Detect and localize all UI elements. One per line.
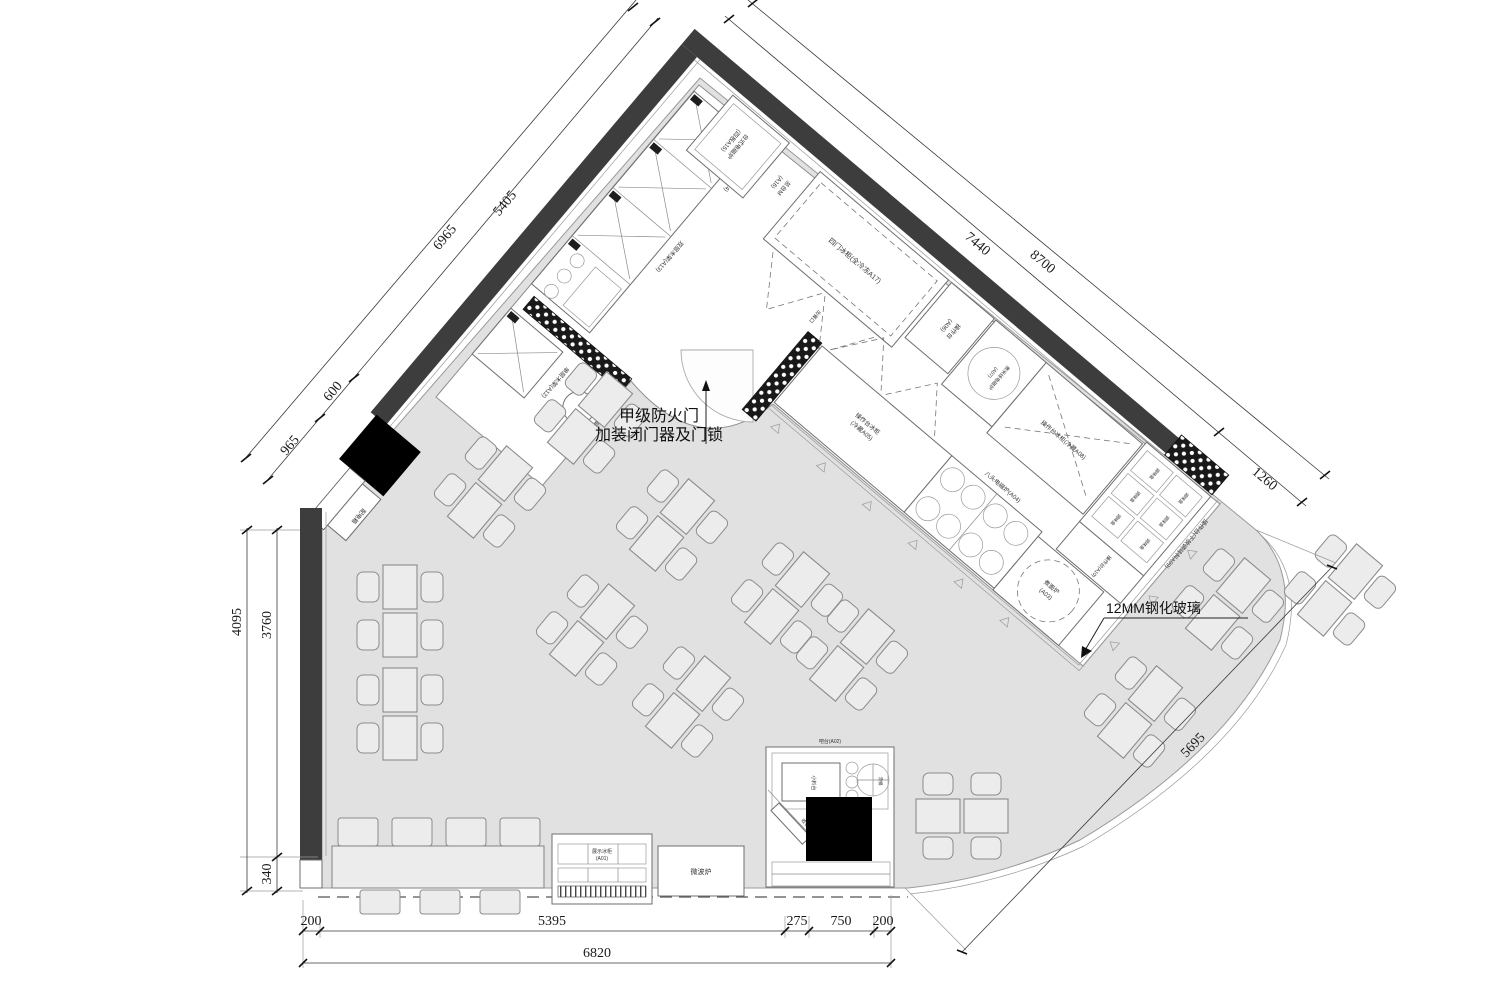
condiment-station-label: 小料台 bbox=[810, 775, 817, 790]
floor-plan-drawing: 配电箱 出餐口 单层吊隔板(A14) 双层木架(A13) bbox=[0, 0, 1500, 996]
dim-750: 750 bbox=[831, 914, 852, 929]
dim-5405: 5405 bbox=[491, 188, 521, 219]
dim-7440: 7440 bbox=[962, 230, 993, 260]
dim-200b: 200 bbox=[873, 914, 894, 929]
dim-200a: 200 bbox=[301, 914, 322, 929]
microwave-label: 微波炉 bbox=[691, 867, 712, 876]
dim-4095: 4095 bbox=[230, 608, 245, 636]
dim-6820: 6820 bbox=[583, 946, 611, 961]
floor-plan-page: 配电箱 出餐口 单层吊隔板(A14) 双层木架(A13) bbox=[0, 0, 1500, 996]
bar-cashier-block: 小料台 汤桶 吧台(A02) 收银机 bbox=[766, 738, 894, 887]
fire-door-text-1: 甲级防火门 bbox=[619, 407, 699, 425]
microwave-table: 微波炉 bbox=[658, 846, 744, 896]
column-black bbox=[806, 797, 872, 861]
dining-table-exterior bbox=[1277, 527, 1402, 653]
display-freezer: 展示冰柜 (A01) bbox=[552, 834, 652, 904]
soup-pot-label: 汤桶 bbox=[877, 777, 884, 786]
display-freezer-label-1: 展示冰柜 bbox=[592, 848, 612, 855]
dim-6965: 6965 bbox=[431, 222, 461, 253]
dim-1260: 1260 bbox=[1249, 465, 1280, 495]
dim-3760: 3760 bbox=[260, 611, 275, 639]
dim-275: 275 bbox=[787, 914, 808, 929]
dim-965: 965 bbox=[278, 433, 303, 459]
dim-5395: 5395 bbox=[538, 914, 566, 929]
dim-600: 600 bbox=[321, 379, 346, 405]
dim-340: 340 bbox=[260, 864, 275, 885]
fire-door-text-2: 加装闭门器及门锁 bbox=[595, 426, 723, 444]
tempered-glass-text: 12MM钢化玻璃 bbox=[1106, 600, 1201, 616]
display-freezer-label-2: (A01) bbox=[596, 856, 609, 862]
bar-counter-label: 吧台(A02) bbox=[819, 738, 842, 745]
